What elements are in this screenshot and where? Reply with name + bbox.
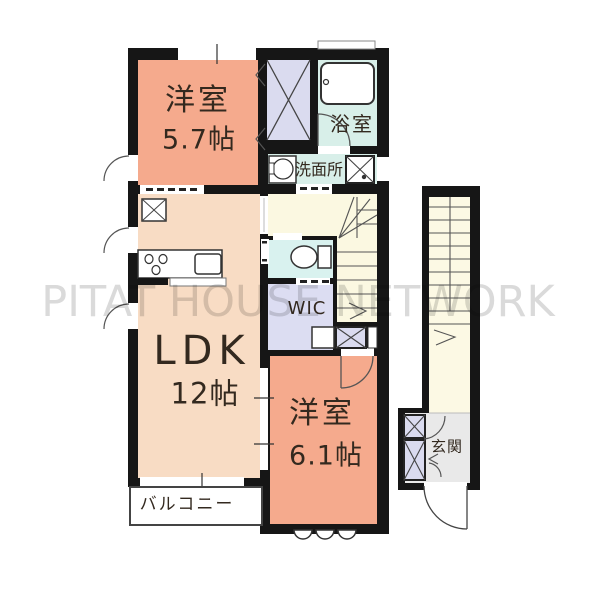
bedroom-bottom-size: 6.1帖 bbox=[289, 443, 363, 470]
toilet-door bbox=[273, 233, 302, 240]
kitchen-sink-icon bbox=[195, 254, 221, 274]
hall-floor bbox=[268, 194, 377, 236]
refrigerator-x-icon bbox=[142, 199, 166, 221]
slider-ldk-bedroom bbox=[260, 368, 268, 470]
washbasin-icon bbox=[269, 156, 296, 183]
entrance-door-arc-icon bbox=[424, 486, 467, 529]
bedroom-top-floor bbox=[138, 60, 258, 185]
window-left-2 bbox=[128, 227, 138, 253]
entrance-door-gap bbox=[424, 482, 467, 490]
window-ldk-bottom bbox=[140, 477, 244, 487]
vent-bumps bbox=[294, 530, 356, 539]
balcony-label: バルコニー bbox=[140, 497, 235, 514]
window-left-1 bbox=[128, 155, 138, 181]
floor-plan: 洋室 5.7帖 浴室 洗面所 WIC LDK 12帖 洋室 6.1帖 バルコニー… bbox=[0, 0, 600, 600]
bedroom-top-label: 洋室 bbox=[165, 86, 231, 116]
bathroom-label: 浴室 bbox=[330, 114, 374, 134]
washroom-label: 洗面所 bbox=[295, 162, 343, 178]
bath-door-gap bbox=[318, 146, 350, 154]
bedroom-bottom-door-gap bbox=[341, 348, 374, 356]
window-washroom-right bbox=[377, 157, 389, 181]
bedroom-top-size: 5.7帖 bbox=[162, 127, 236, 154]
toilet-icon bbox=[291, 246, 331, 268]
watermark: PITAT HOUSE NETWORK bbox=[0, 277, 600, 327]
ldk-label: LDK bbox=[153, 331, 250, 371]
window-top-bath bbox=[318, 41, 375, 49]
ldk-size: 12帖 bbox=[171, 380, 240, 409]
washer-pan-x-icon bbox=[346, 156, 374, 183]
entrance-label: 玄関 bbox=[431, 440, 463, 455]
bedroom-bottom-label: 洋室 bbox=[289, 399, 355, 429]
bathtub-icon bbox=[321, 63, 374, 104]
